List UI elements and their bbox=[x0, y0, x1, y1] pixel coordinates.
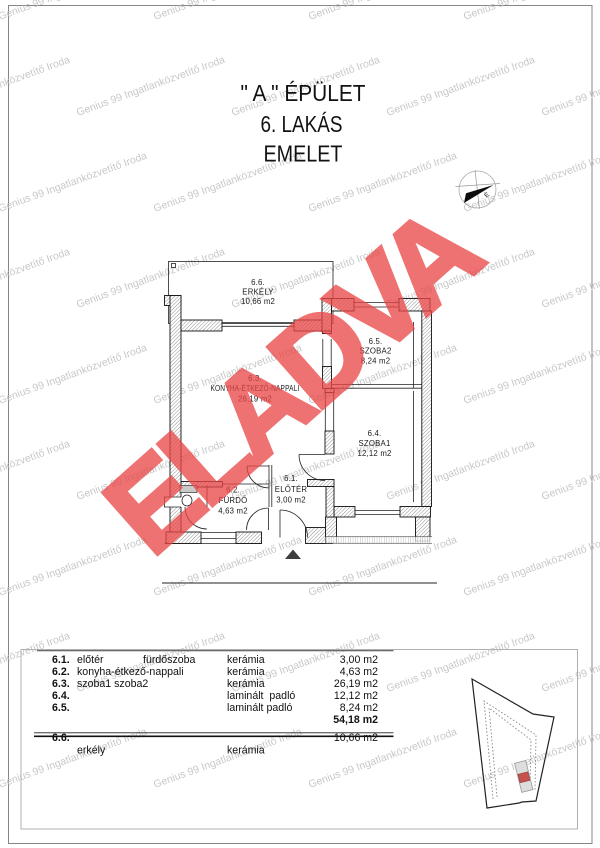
svg-text:Genius 99 Ingatlanközvetítő Ir: Genius 99 Ingatlanközvetítő Iroda bbox=[540, 54, 600, 119]
svg-text:6.4.: 6.4. bbox=[52, 690, 70, 702]
svg-text:Genius 99 Ingatlanközvetítő Ir: Genius 99 Ingatlanközvetítő Iroda bbox=[0, 150, 149, 215]
svg-text:Genius 99 Ingatlanközvetítő Ir: Genius 99 Ingatlanközvetítő Iroda bbox=[75, 246, 227, 311]
svg-text:12,12 m2: 12,12 m2 bbox=[357, 449, 391, 458]
svg-text:Genius 99 Ingatlanközvetítő Ir: Genius 99 Ingatlanközvetítő Iroda bbox=[0, 342, 149, 407]
svg-text:Genius 99 Ingatlanközvetítő Ir: Genius 99 Ingatlanközvetítő Iroda bbox=[307, 0, 459, 23]
svg-text:SZOBA1: SZOBA1 bbox=[359, 439, 391, 448]
svg-text:Genius 99 Ingatlanközvetítő Ir: Genius 99 Ingatlanközvetítő Iroda bbox=[462, 534, 600, 599]
svg-text:kerámia: kerámia bbox=[227, 745, 265, 757]
svg-text:8,24 m2: 8,24 m2 bbox=[340, 702, 378, 714]
svg-text:kerámia: kerámia bbox=[227, 666, 265, 678]
svg-text:Genius 99 Ingatlanközvetítő Ir: Genius 99 Ingatlanközvetítő Iroda bbox=[385, 438, 537, 503]
svg-text:előtér: előtér bbox=[77, 654, 104, 666]
svg-text:Genius 99 Ingatlanközvetítő Ir: Genius 99 Ingatlanközvetítő Iroda bbox=[385, 630, 537, 695]
svg-text:EMELET: EMELET bbox=[264, 141, 343, 167]
svg-text:6.5.: 6.5. bbox=[52, 702, 70, 714]
svg-text:10,66 m2: 10,66 m2 bbox=[334, 732, 378, 744]
svg-text:6.4.: 6.4. bbox=[368, 429, 382, 438]
svg-text:6. LAKÁS: 6. LAKÁS bbox=[261, 111, 343, 137]
svg-text:4,63 m2: 4,63 m2 bbox=[340, 666, 378, 678]
svg-text:laminált padló: laminált padló bbox=[227, 690, 295, 702]
svg-text:3,00 m2: 3,00 m2 bbox=[276, 496, 306, 505]
svg-text:Genius 99 Ingatlanközvetítő Ir: Genius 99 Ingatlanközvetítő Iroda bbox=[462, 0, 600, 23]
svg-text:ELADVA: ELADVA bbox=[81, 183, 504, 579]
svg-text:6.2.: 6.2. bbox=[52, 666, 70, 678]
svg-text:Genius 99 Ingatlanközvetítő Ir: Genius 99 Ingatlanközvetítő Iroda bbox=[540, 438, 600, 503]
svg-text:6.6.: 6.6. bbox=[251, 278, 265, 287]
svg-text:6.3.: 6.3. bbox=[52, 678, 70, 690]
svg-text:Genius 99 Ingatlanközvetítő Ir: Genius 99 Ingatlanközvetítő Iroda bbox=[540, 630, 600, 695]
svg-text:Genius 99 Ingatlanközvetítő Ir: Genius 99 Ingatlanközvetítő Iroda bbox=[0, 534, 149, 599]
svg-text:Genius 99 Ingatlanközvetítő Ir: Genius 99 Ingatlanközvetítő Iroda bbox=[75, 54, 227, 119]
svg-text:6.1.: 6.1. bbox=[284, 474, 298, 483]
svg-text:Genius 99 Ingatlanközvetítő Ir: Genius 99 Ingatlanközvetítő Iroda bbox=[385, 54, 537, 119]
svg-text:kerámia: kerámia bbox=[227, 654, 265, 666]
svg-text:54,18 m2: 54,18 m2 bbox=[333, 714, 378, 726]
svg-text:konyha-étkező-nappali: konyha-étkező-nappali bbox=[77, 666, 184, 678]
svg-text:10,66 m2: 10,66 m2 bbox=[241, 297, 275, 306]
svg-text:Genius 99 Ingatlanközvetítő Ir: Genius 99 Ingatlanközvetítő Iroda bbox=[462, 342, 600, 407]
svg-text:6.6.: 6.6. bbox=[52, 732, 70, 744]
svg-text:Genius 99 Ingatlanközvetítő Ir: Genius 99 Ingatlanközvetítő Iroda bbox=[0, 54, 72, 119]
svg-text:ELŐTÉR: ELŐTÉR bbox=[275, 485, 308, 494]
svg-text:26,19 m2: 26,19 m2 bbox=[334, 678, 378, 690]
svg-text:Genius 99 Ingatlanközvetítő Ir: Genius 99 Ingatlanközvetítő Iroda bbox=[0, 0, 149, 23]
svg-text:12,12 m2: 12,12 m2 bbox=[334, 690, 378, 702]
svg-text:6.1.: 6.1. bbox=[52, 654, 70, 666]
svg-text:" A " ÉPÜLET: " A " ÉPÜLET bbox=[241, 80, 366, 106]
svg-text:Genius 99 Ingatlanközvetítő Ir: Genius 99 Ingatlanközvetítő Iroda bbox=[0, 438, 72, 503]
svg-text:kerámia: kerámia bbox=[227, 678, 265, 690]
svg-text:szoba1 szoba2: szoba1 szoba2 bbox=[77, 678, 148, 690]
svg-text:3,00 m2: 3,00 m2 bbox=[340, 654, 378, 666]
svg-text:Genius 99 Ingatlanközvetítő Ir: Genius 99 Ingatlanközvetítő Iroda bbox=[152, 0, 304, 23]
svg-text:Genius 99 Ingatlanközvetítő Ir: Genius 99 Ingatlanközvetítő Iroda bbox=[462, 150, 600, 215]
svg-text:fürdőszoba: fürdőszoba bbox=[143, 654, 196, 666]
svg-text:Genius 99 Ingatlanközvetítő Ir: Genius 99 Ingatlanközvetítő Iroda bbox=[0, 246, 72, 311]
svg-text:Genius 99 Ingatlanközvetítő Ir: Genius 99 Ingatlanközvetítő Iroda bbox=[540, 246, 600, 311]
svg-text:laminált padló: laminált padló bbox=[227, 702, 292, 714]
svg-text:ERKÉLY: ERKÉLY bbox=[242, 288, 274, 297]
svg-text:erkély: erkély bbox=[77, 745, 106, 757]
